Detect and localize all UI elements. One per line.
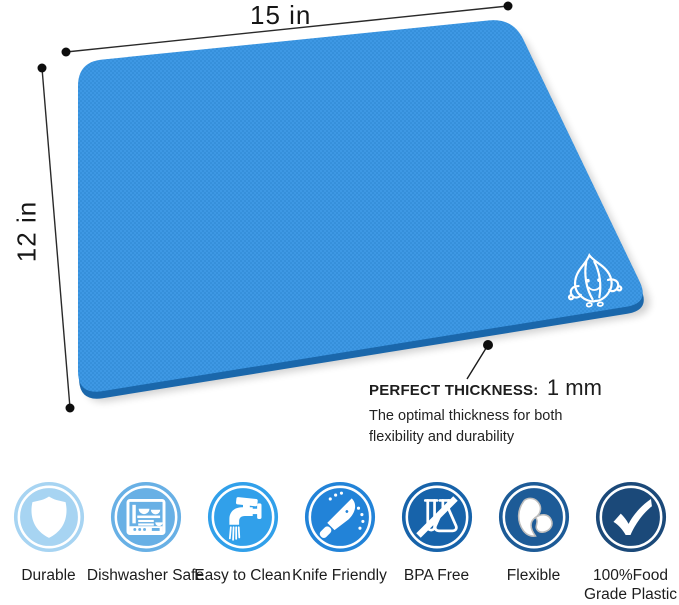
feature-dishwasher-safe: Dishwasher Safe <box>97 480 194 605</box>
feature-food-grade: 100%Food Grade Plastic <box>582 480 679 605</box>
thickness-callout-value: 1 mm <box>547 375 602 400</box>
feature-knife-friendly: Knife Friendly <box>291 480 388 605</box>
faucet-icon <box>206 480 280 554</box>
mat-surface <box>78 20 643 392</box>
flexible-sheet-icon <box>497 480 571 554</box>
feature-label: Flexible <box>507 566 560 585</box>
height-dimension-line <box>38 64 75 413</box>
feature-label: Knife Friendly <box>292 566 387 585</box>
feature-label: Durable <box>21 566 75 585</box>
feature-durable: Durable <box>0 480 97 605</box>
feature-row: Durable Dishwasher Safe <box>0 480 679 605</box>
feature-label: Dishwasher Safe <box>87 566 204 585</box>
checkmark-icon <box>594 480 668 554</box>
feature-label: Easy to Clean <box>194 566 291 585</box>
no-bpa-flask-icon <box>400 480 474 554</box>
thickness-callout-title: PERFECT THICKNESS: <box>369 382 538 399</box>
feature-flexible: Flexible <box>485 480 582 605</box>
feature-label: BPA Free <box>404 566 469 585</box>
thickness-callout: PERFECT THICKNESS: 1 mm The optimal thic… <box>369 375 659 448</box>
product-infographic: 15 in 12 in PERFECT THICKNESS: 1 mm The … <box>0 0 679 605</box>
thickness-callout-leader <box>467 340 493 379</box>
thickness-callout-description-line1: The optimal thickness for both <box>369 406 659 427</box>
width-dimension-label: 15 in <box>250 0 311 31</box>
feature-bpa-free: BPA Free <box>388 480 485 605</box>
knife-icon <box>303 480 377 554</box>
shield-icon <box>12 480 86 554</box>
thickness-callout-description-line2: flexibility and durability <box>369 427 659 448</box>
feature-label: 100%Food Grade Plastic <box>582 566 679 605</box>
feature-easy-to-clean: Easy to Clean <box>194 480 291 605</box>
dishwasher-icon <box>109 480 183 554</box>
height-dimension-label: 12 in <box>12 191 43 273</box>
